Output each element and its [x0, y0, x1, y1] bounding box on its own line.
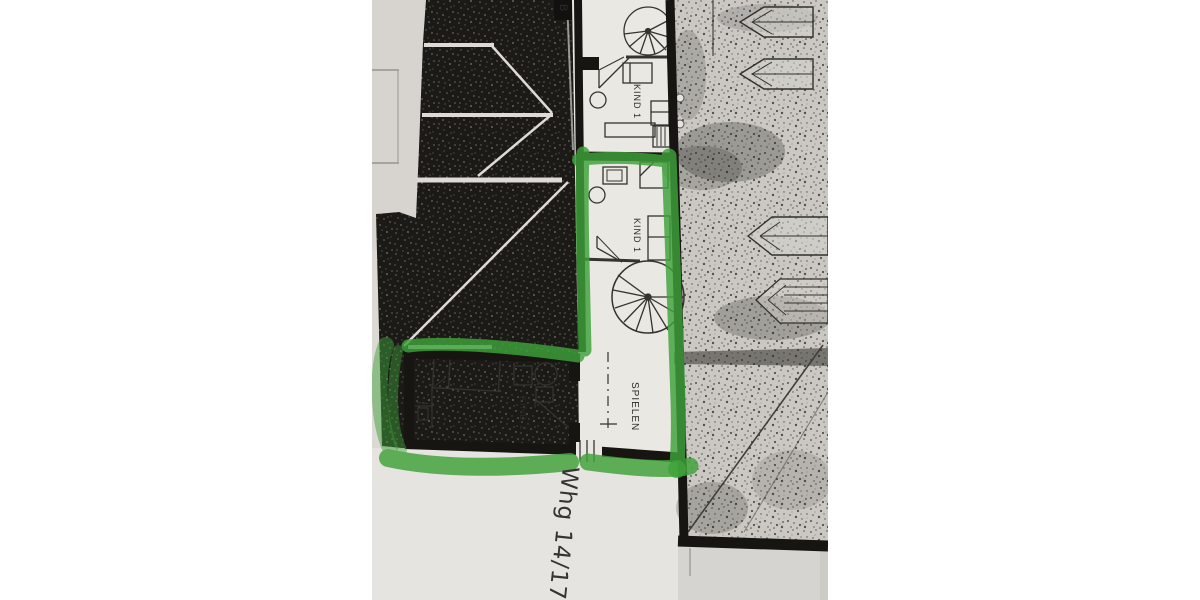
room-label-spielen: SPIELEN — [629, 382, 640, 431]
highlight-left-wall — [582, 153, 585, 350]
room-label-kind2: KIND 2 — [518, 396, 528, 431]
highlight-tip — [668, 460, 686, 478]
floorplan-photo: B — [372, 0, 828, 600]
paper-below-boundary — [678, 545, 828, 600]
wall-symbol-circle — [676, 94, 684, 102]
screenshot-canvas: B — [0, 0, 1200, 600]
highlight-room-divider — [578, 158, 670, 162]
paper-edge-shade — [820, 548, 828, 600]
room-label-kind1-middle: KIND 1 — [632, 218, 642, 253]
room-label-kind1-upper: KIND 1 — [632, 84, 642, 119]
highlight-bottom-band — [388, 458, 570, 467]
corner-mark-label: B — [557, 4, 569, 12]
wall-kind2-bottom — [405, 444, 578, 450]
wall-pier — [582, 57, 599, 70]
boundary-wall-bottom — [678, 541, 828, 546]
